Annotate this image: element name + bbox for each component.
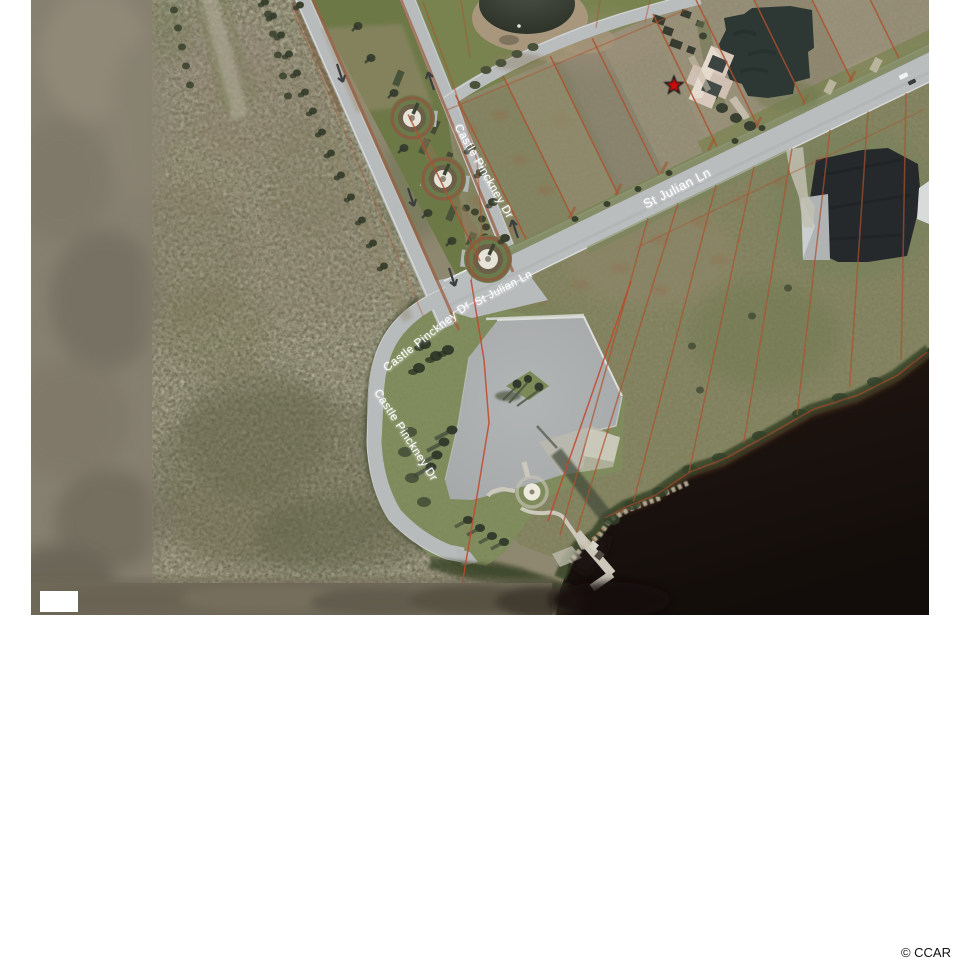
svg-text:© CCAR: © CCAR	[901, 945, 951, 960]
